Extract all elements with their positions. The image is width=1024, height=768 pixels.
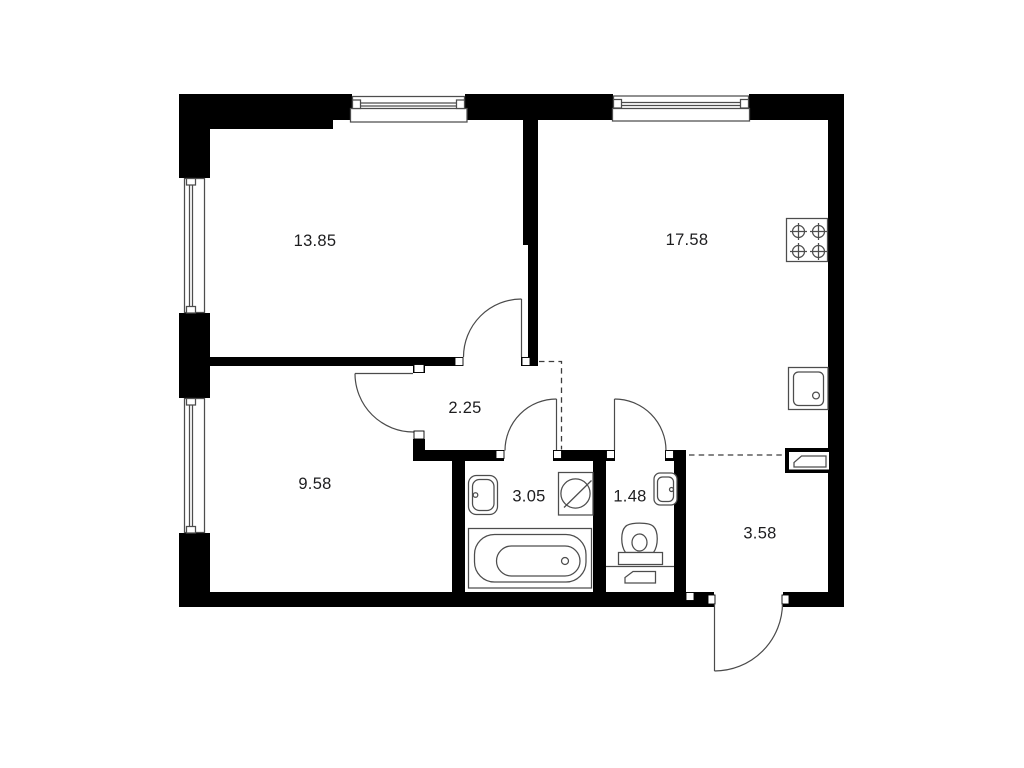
room-label-kitchen: 17.58 [666, 231, 709, 249]
jamb-mark [782, 595, 789, 604]
jamb-mark [414, 431, 424, 439]
room-label-wc: 1.48 [613, 488, 646, 506]
wall-segment [179, 94, 210, 178]
wall-segment [783, 592, 844, 607]
floorplan-canvas: 13.85 17.58 2.25 9.58 3.05 1.48 3.58 [0, 0, 1024, 768]
toilet-icon [606, 523, 674, 566]
windows [185, 96, 750, 533]
jamb-mark [607, 451, 615, 459]
wall-segment [523, 118, 538, 245]
door-bathroom-icon [505, 399, 557, 451]
door-room-bottom-left-icon [355, 374, 414, 433]
room-label-bathroom: 3.05 [512, 488, 545, 506]
room-label-top-left: 13.85 [294, 232, 337, 250]
door-entrance-icon [715, 603, 783, 671]
window-top-left-icon [351, 97, 468, 123]
jamb-mark [686, 593, 694, 601]
wall-segment [828, 94, 844, 607]
room-label-entry-hall: 3.58 [743, 525, 776, 543]
washing-machine-icon [559, 473, 594, 516]
jamb-mark [554, 451, 562, 459]
interior-walls [207, 118, 686, 592]
wall-segment [179, 313, 210, 398]
fixtures [469, 219, 834, 589]
wc-radiator-icon [625, 572, 656, 584]
washbasin-icon [469, 476, 498, 515]
window-top-right-icon [613, 96, 750, 121]
wall-segment [413, 450, 504, 461]
door-wc-icon [615, 399, 667, 451]
wall-segment [674, 450, 686, 592]
window-left-lower-icon [185, 399, 205, 534]
bathtub-icon [469, 529, 592, 589]
dashed-boundary [539, 362, 562, 450]
wall-step [207, 120, 333, 129]
window-left-upper-icon [185, 179, 205, 314]
jamb-mark [522, 358, 530, 366]
wall-segment [452, 461, 465, 592]
jamb-mark [708, 595, 715, 604]
jamb-mark [455, 358, 463, 366]
electrical-panel-icon [785, 448, 833, 473]
wall-segment [179, 592, 714, 607]
wall-segment [593, 450, 606, 592]
jamb-mark [414, 365, 424, 373]
jamb-mark [496, 451, 504, 459]
wc-washbasin-icon [654, 473, 677, 505]
room-label-hallway: 2.25 [448, 399, 481, 417]
stove-icon [787, 219, 828, 262]
wall-segment [465, 94, 613, 120]
wall-segment [528, 245, 538, 366]
kitchen-sink-icon [789, 368, 829, 410]
room-label-bottom-left: 9.58 [298, 475, 331, 493]
jamb-mark [666, 451, 674, 459]
floorplan-svg: 13.85 17.58 2.25 9.58 3.05 1.48 3.58 [0, 0, 1024, 768]
door-room-top-left-icon [464, 299, 522, 357]
zone-boundaries [539, 362, 784, 456]
